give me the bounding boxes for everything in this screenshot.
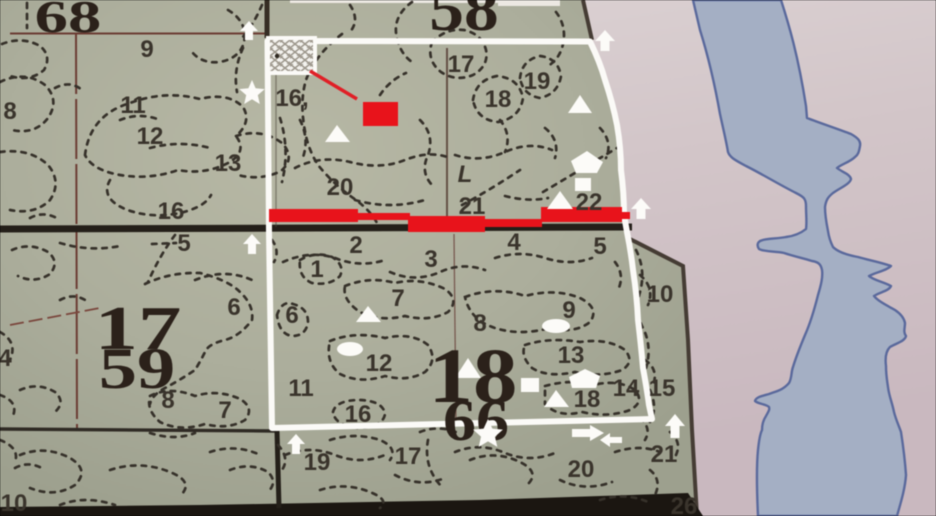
svg-text:16: 16 bbox=[158, 198, 185, 225]
svg-text:11: 11 bbox=[288, 375, 313, 402]
svg-text:15: 15 bbox=[649, 375, 676, 402]
svg-text:14: 14 bbox=[613, 375, 640, 402]
svg-text:8: 8 bbox=[3, 98, 16, 125]
svg-text:10: 10 bbox=[647, 281, 674, 308]
svg-text:6: 6 bbox=[285, 302, 298, 329]
svg-text:19: 19 bbox=[304, 449, 331, 476]
svg-text:21: 21 bbox=[651, 441, 678, 468]
svg-text:22: 22 bbox=[576, 189, 603, 216]
svg-text:1: 1 bbox=[310, 256, 323, 283]
svg-text:3: 3 bbox=[424, 246, 437, 273]
svg-text:5: 5 bbox=[177, 230, 190, 257]
svg-text:4: 4 bbox=[0, 345, 12, 372]
svg-text:8: 8 bbox=[161, 387, 174, 414]
svg-text:66: 66 bbox=[443, 390, 509, 453]
svg-text:18: 18 bbox=[574, 386, 601, 413]
svg-text:5: 5 bbox=[593, 233, 606, 260]
svg-text:13: 13 bbox=[558, 342, 585, 369]
svg-text:16,: 16, bbox=[275, 85, 308, 112]
svg-text:19: 19 bbox=[524, 68, 551, 95]
svg-text:9: 9 bbox=[140, 36, 153, 63]
svg-text:7: 7 bbox=[218, 397, 231, 424]
svg-text:26: 26 bbox=[671, 493, 698, 516]
svg-text:20: 20 bbox=[327, 174, 354, 201]
svg-text:17: 17 bbox=[448, 51, 475, 78]
svg-text:9: 9 bbox=[562, 297, 575, 324]
svg-text:17: 17 bbox=[395, 443, 422, 470]
svg-text:7: 7 bbox=[391, 285, 404, 312]
svg-text:2: 2 bbox=[349, 232, 362, 259]
svg-text:11: 11 bbox=[120, 92, 145, 119]
svg-text:10: 10 bbox=[1, 490, 28, 516]
svg-text:L: L bbox=[458, 161, 473, 188]
svg-text:16: 16 bbox=[345, 401, 372, 428]
svg-text:4: 4 bbox=[507, 229, 521, 256]
svg-text:68: 68 bbox=[35, 0, 102, 42]
svg-text:58: 58 bbox=[429, 0, 498, 44]
svg-text:12: 12 bbox=[366, 350, 393, 377]
svg-text:20: 20 bbox=[568, 456, 595, 483]
svg-text:18: 18 bbox=[485, 86, 512, 113]
svg-text:13: 13 bbox=[215, 150, 242, 177]
svg-text:8: 8 bbox=[473, 310, 486, 337]
svg-text:12: 12 bbox=[137, 123, 164, 150]
svg-text:6: 6 bbox=[227, 294, 240, 321]
svg-text:21: 21 bbox=[459, 193, 486, 220]
